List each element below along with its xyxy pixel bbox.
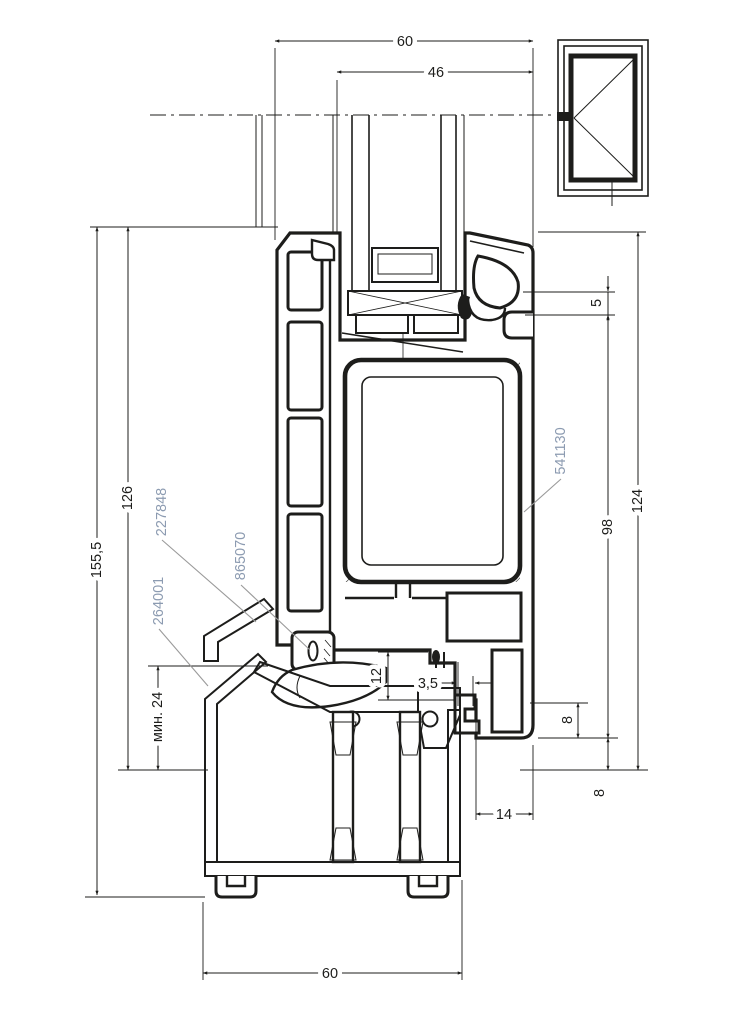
dim-overhang-width: 14 <box>496 807 512 823</box>
part-label-drip-cap: 227848 <box>154 488 170 536</box>
sash-gasket <box>432 650 440 664</box>
setting-block <box>348 291 462 315</box>
sash-chamber <box>288 418 322 506</box>
glass-pane-left <box>352 115 369 291</box>
dim-min-glazing-depth: мин. 24 <box>150 692 166 742</box>
technical-drawing-canvas: 60 46 155,5 126 мин. 24 5 98 124 8 8 12 … <box>0 0 730 1026</box>
dim-sash-clearance: 12 <box>369 668 385 684</box>
dim-sash-height: 126 <box>120 486 136 510</box>
dim-right-98: 98 <box>600 519 616 535</box>
dim-rebate-gap-upper: 8 <box>560 716 576 724</box>
dim-top-outer-width: 60 <box>397 34 413 50</box>
dim-rebate-gap-lower: 8 <box>592 789 608 797</box>
dim-bead-step: 5 <box>589 299 605 307</box>
dim-bottom-outer-width: 60 <box>322 966 338 982</box>
screw-port <box>423 712 438 727</box>
dim-top-glazing-width: 46 <box>428 65 444 81</box>
sill-feet <box>216 876 448 897</box>
dim-overall-height: 155,5 <box>89 542 105 578</box>
handle-mark <box>557 112 570 121</box>
dim-drainage-gap: 3,5 <box>418 676 438 692</box>
glazing-spacer <box>372 248 438 282</box>
thermal-break-left <box>330 712 356 862</box>
drip-cap <box>204 599 273 661</box>
part-label-steel-reinforcement: 541130 <box>553 427 569 474</box>
sash-chamber <box>447 593 521 641</box>
steel-reinforcement <box>345 360 520 582</box>
dim-right-124: 124 <box>630 489 646 513</box>
part-label-gasket: 865070 <box>233 532 249 580</box>
sash-chamber <box>288 322 322 410</box>
profile-section-drawing: 60 46 155,5 126 мин. 24 5 98 124 8 8 12 … <box>0 0 730 1026</box>
sash-chamber <box>492 650 522 732</box>
sash-chamber <box>288 514 322 611</box>
glass-pane-right <box>441 115 456 291</box>
window-elevation-symbol <box>557 40 648 206</box>
thermal-break-right <box>397 712 423 862</box>
part-label-frame-profile: 264001 <box>151 577 167 625</box>
